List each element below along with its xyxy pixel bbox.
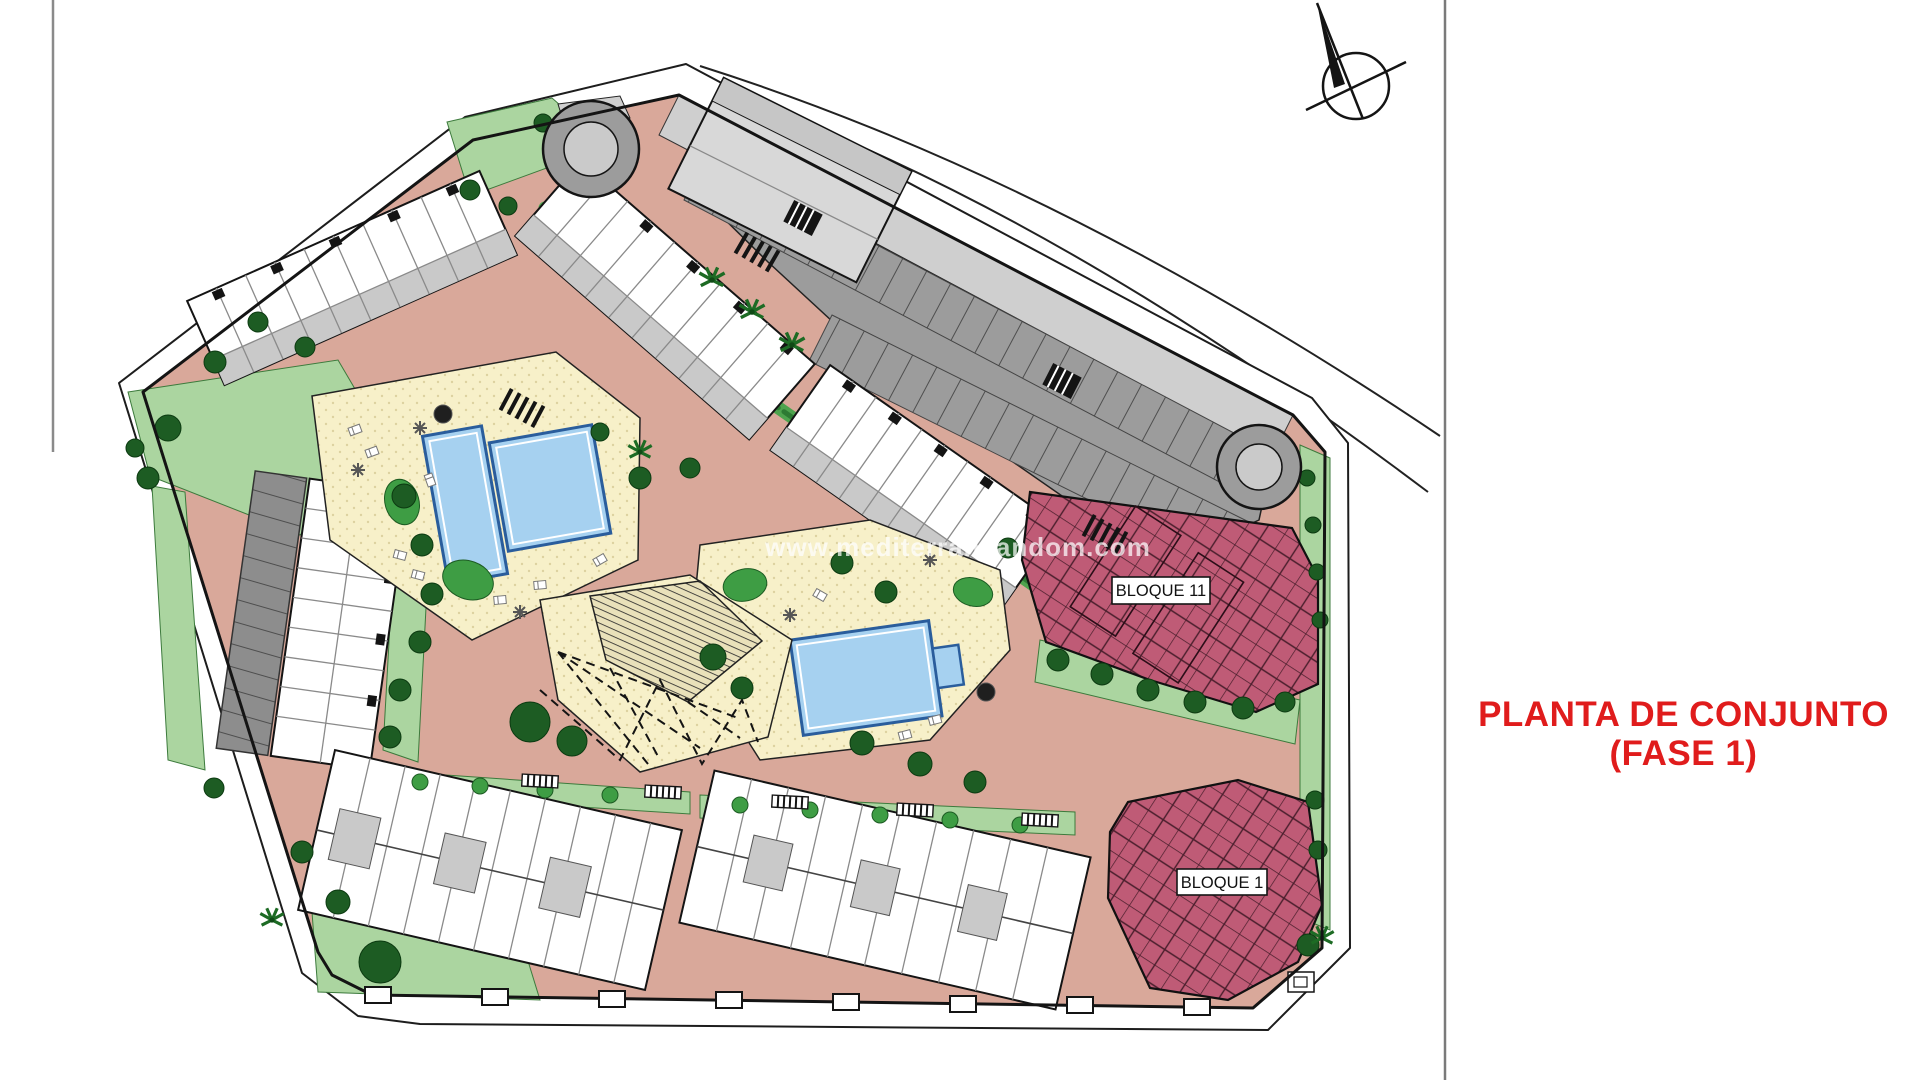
pergola-icon	[522, 774, 559, 788]
pergola-icon	[1022, 813, 1059, 827]
plan-title-line1: PLANTA DE CONJUNTO	[1447, 696, 1920, 735]
drawing-sheet: BLOQUE 11 BLOQUE 1 www.mediterraneandom.…	[0, 0, 1920, 1080]
bloque-1-label: BLOQUE 1	[1177, 869, 1267, 895]
site-plan-drawing: BLOQUE 11 BLOQUE 1 www.mediterraneandom.…	[0, 0, 1920, 1080]
plan-title-line2: (FASE 1)	[1447, 735, 1920, 774]
pergola-icon	[645, 785, 682, 799]
bloque-1-label-text: BLOQUE 1	[1181, 874, 1264, 892]
bloque-11-label: BLOQUE 11	[1112, 577, 1210, 604]
bloque-11-label-text: BLOQUE 11	[1116, 582, 1206, 600]
roundabout-east	[1217, 425, 1301, 509]
pergola-icon	[897, 803, 934, 817]
plan-title: PLANTA DE CONJUNTO (FASE 1)	[1447, 696, 1920, 773]
north-arrow-compass-icon	[1306, 3, 1406, 119]
watermark-text: www.mediterraneandom.com	[764, 532, 1151, 562]
pergola-icon	[772, 795, 809, 809]
